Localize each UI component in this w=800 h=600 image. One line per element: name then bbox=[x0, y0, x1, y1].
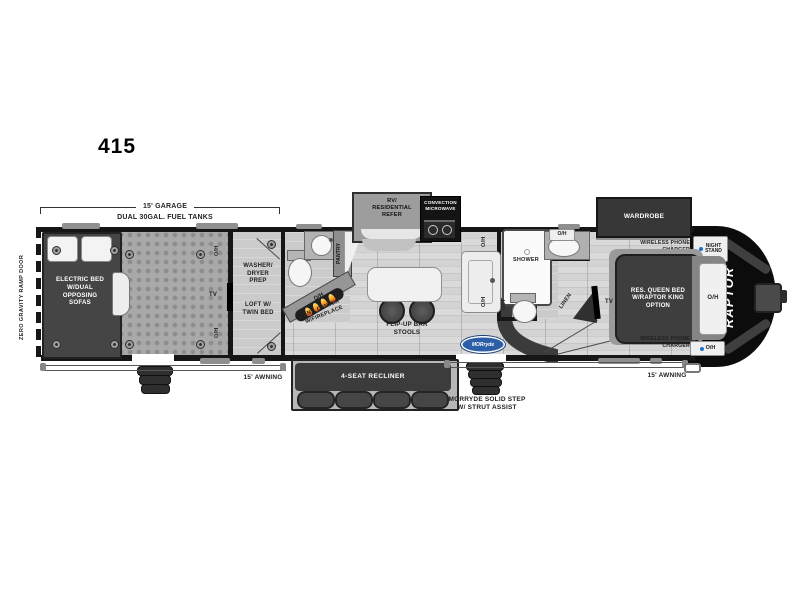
queen-bed-label: RES. QUEEN BED W/RAPTOR KING OPTION bbox=[631, 288, 685, 311]
sofa-arm bbox=[112, 272, 130, 316]
shower-label: SHOWER bbox=[505, 257, 547, 264]
flip-up-bar-label: FLIP-UP BAR STOOLS bbox=[376, 321, 438, 337]
recliner-cushion bbox=[297, 391, 335, 409]
wardrobe-label: WARDROBE bbox=[624, 213, 664, 221]
hitch-pin-tip bbox=[780, 290, 787, 303]
bedroom-tv-label: TV bbox=[600, 299, 618, 307]
electric-bed-label: ELECTRIC BED W/DUAL OPPOSING SOFAS bbox=[44, 276, 116, 307]
rivet bbox=[267, 240, 276, 249]
awning-end-cap bbox=[444, 360, 450, 368]
night-stand-label: NIGHT STAND bbox=[705, 244, 722, 255]
rivet bbox=[110, 340, 119, 349]
wardrobe-slide: WARDROBE bbox=[596, 197, 692, 238]
vanity-oh-label: O/H bbox=[558, 232, 567, 238]
rivet bbox=[196, 250, 205, 259]
morryde-logo-text: MORryde bbox=[472, 342, 494, 348]
refer-shelf bbox=[361, 229, 423, 239]
rivet bbox=[52, 246, 61, 255]
awning-left-label: 15' AWNING bbox=[238, 374, 288, 382]
garage-dim-line-right bbox=[194, 207, 280, 208]
awning-right-label: 15' AWNING bbox=[642, 372, 692, 380]
fuel-tanks-label: DUAL 30GAL. FUEL TANKS bbox=[88, 214, 242, 223]
rivet bbox=[52, 340, 61, 349]
entry-step bbox=[472, 386, 500, 395]
ramp-door-label: ZERO GRAVITY RAMP DOOR bbox=[19, 243, 30, 351]
entry-step-label: MORRYDE SOLID STEP W/ STRUT ASSIST bbox=[445, 396, 529, 412]
ramp-door-dashed-wall bbox=[36, 227, 41, 361]
roof-tab bbox=[196, 223, 238, 229]
refer-label: RV/ RESIDENTIAL REFER bbox=[354, 198, 430, 219]
garage-oh-bottom-label: O/H bbox=[214, 323, 223, 343]
bed-pillow bbox=[81, 236, 112, 262]
recliner-cushion bbox=[411, 391, 449, 409]
garage-door-opening bbox=[132, 354, 174, 362]
roof-tab bbox=[296, 224, 322, 229]
hitch-pin bbox=[754, 283, 782, 313]
morryde-logo: MORryde bbox=[461, 336, 505, 353]
foot-oh-label: O/H bbox=[706, 345, 716, 351]
vanity-oh-tag: O/H bbox=[549, 229, 575, 241]
loft-label: LOFT W/ TWIN BED bbox=[234, 302, 282, 317]
toilet bbox=[512, 300, 537, 323]
charger-dot-icon bbox=[700, 347, 704, 351]
queen-bed: RES. QUEEN BED W/RAPTOR KING OPTION bbox=[615, 254, 701, 344]
awning-end-cap bbox=[40, 363, 46, 371]
refer-door-arc bbox=[362, 239, 416, 251]
roof-tab bbox=[62, 223, 100, 229]
kitchen-faucet bbox=[490, 278, 495, 283]
garage-tv-label: TV bbox=[204, 292, 222, 300]
foot-oh-tag: O/H bbox=[690, 341, 725, 356]
loft-partition-wall bbox=[281, 231, 285, 356]
bath-oh-label: O/H bbox=[501, 295, 510, 315]
recliner-cushion bbox=[335, 391, 373, 409]
awning-end-cap bbox=[280, 363, 286, 371]
burner bbox=[442, 225, 452, 235]
floorplan-canvas: 415 15' GARAGE DUAL 30GAL. FUEL TANKS RA… bbox=[0, 0, 800, 600]
garage-dim-line-left bbox=[40, 207, 136, 208]
awning-right-line bbox=[446, 362, 686, 368]
garage-tv bbox=[227, 283, 233, 311]
headboard-cabinet: O/H bbox=[699, 263, 727, 335]
rivet bbox=[267, 342, 276, 351]
toilet bbox=[288, 258, 312, 287]
kitchen-oh-bottom-label: O/H bbox=[481, 293, 490, 311]
entry-door-opening bbox=[456, 354, 506, 362]
headboard-oh-label: O/H bbox=[707, 295, 718, 303]
microwave-label: CONVECTION MICROWAVE bbox=[421, 200, 460, 211]
garage-length-label: 15' GARAGE bbox=[134, 203, 196, 212]
recliner-back: 4-SEAT RECLINER bbox=[295, 363, 451, 391]
model-number: 415 bbox=[98, 134, 158, 160]
rivet bbox=[110, 246, 119, 255]
washer-dryer-label: WASHER/ DRYER PREP bbox=[234, 263, 282, 286]
rivet bbox=[196, 340, 205, 349]
burner bbox=[428, 225, 438, 235]
garage-oh-top-label: O/H bbox=[214, 241, 223, 261]
awning-left-line bbox=[42, 365, 286, 371]
recliner-cushion bbox=[373, 391, 411, 409]
garage-dim-tick-right bbox=[279, 207, 280, 214]
kitchen-oh-top-label: O/H bbox=[481, 233, 490, 251]
loft-room-floor bbox=[233, 231, 283, 357]
shower-drain bbox=[524, 249, 530, 255]
convection-microwave: CONVECTION MICROWAVE bbox=[420, 196, 461, 242]
rivet bbox=[125, 340, 134, 349]
wireless-charger-bottom-label: WIRELESS PHONE CHARGER bbox=[624, 336, 690, 349]
garage-dim-tick-left bbox=[40, 207, 41, 214]
flip-up-bar-table bbox=[367, 267, 442, 302]
rivet bbox=[125, 250, 134, 259]
bottom-tab bbox=[200, 358, 230, 364]
garage-step bbox=[141, 384, 170, 394]
bottom-tab bbox=[252, 358, 265, 364]
recliner-label: 4-SEAT RECLINER bbox=[341, 373, 405, 381]
